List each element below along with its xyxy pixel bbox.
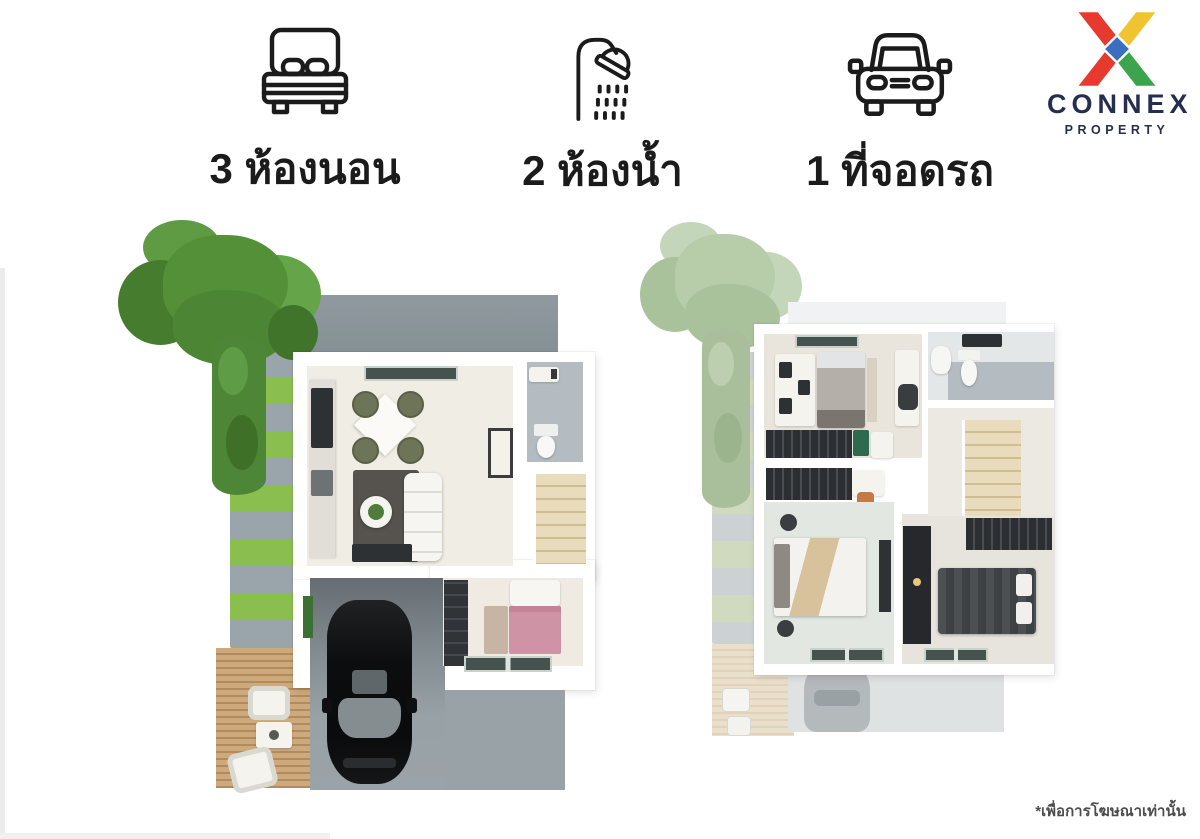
- bedroom2-window: [795, 335, 859, 348]
- toilet2-tank: [958, 350, 980, 360]
- bedroom3-bed: [938, 568, 1036, 634]
- bedroom2-runner: [867, 358, 877, 422]
- desk-chair: [898, 384, 918, 410]
- roof-edge: [788, 302, 1006, 326]
- ivy-hedge-faded: [702, 328, 750, 508]
- side-table: [777, 620, 794, 637]
- bedroom2-dresser: [775, 354, 815, 426]
- patio-furniture-faded: [722, 688, 750, 712]
- patio-furniture-faded: [727, 716, 751, 736]
- staircase-upper: [962, 420, 1021, 516]
- wardrobe-row: [766, 468, 852, 500]
- property-ad: 3 ห้องนอน 2: [0, 0, 1200, 839]
- bathroom2-counter: [962, 334, 1002, 347]
- photo-edge: [0, 268, 5, 839]
- bedroom3-feature-wall: [903, 526, 931, 644]
- bedroom3-wardrobe: [966, 518, 1052, 550]
- toilet2: [961, 360, 977, 386]
- master-window: [810, 648, 884, 662]
- photo-edge: [0, 833, 330, 839]
- side-table: [780, 514, 797, 531]
- bedroom2-bed: [817, 352, 865, 428]
- green-cabinet: [853, 430, 869, 456]
- wardrobe-row: [766, 430, 852, 458]
- master-bed: [774, 538, 866, 616]
- bedroom3-window: [924, 648, 988, 662]
- floorplan-second-floor: [0, 0, 1200, 839]
- master-tv-console: [879, 540, 891, 612]
- bathroom2-sink: [931, 346, 951, 374]
- closet-desk: [871, 432, 893, 458]
- disclaimer-text: *เพื่อการโฆษณาเท่านั้น: [1035, 799, 1186, 823]
